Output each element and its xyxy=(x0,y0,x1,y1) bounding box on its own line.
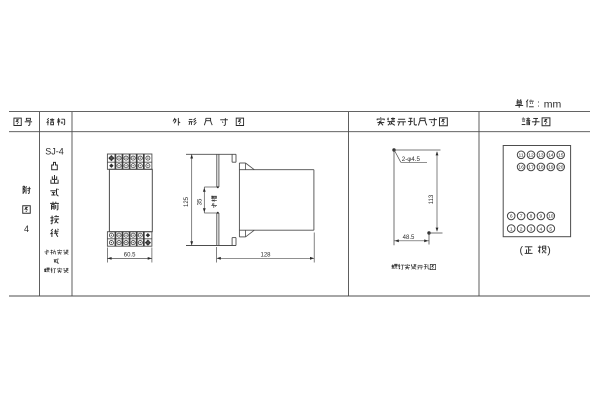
svg-text:(: ( xyxy=(520,244,524,256)
svg-text:mm: mm xyxy=(544,99,562,111)
svg-text:4: 4 xyxy=(24,224,29,234)
svg-text:7: 7 xyxy=(520,214,523,220)
svg-text:113: 113 xyxy=(429,194,435,204)
svg-text:18: 18 xyxy=(538,165,544,171)
svg-text:12: 12 xyxy=(528,153,534,159)
svg-text:8: 8 xyxy=(530,214,533,220)
svg-text:35: 35 xyxy=(197,198,203,205)
svg-text:11: 11 xyxy=(519,153,524,159)
svg-text:1: 1 xyxy=(510,226,513,232)
svg-text:): ) xyxy=(547,244,551,256)
svg-text:9: 9 xyxy=(540,214,543,220)
svg-text::: : xyxy=(537,99,540,110)
svg-text:17: 17 xyxy=(528,165,534,171)
svg-text:2: 2 xyxy=(520,226,523,232)
svg-text:20: 20 xyxy=(558,165,564,171)
svg-text:13: 13 xyxy=(538,153,544,159)
svg-text:14: 14 xyxy=(548,153,554,159)
svg-text:60.5: 60.5 xyxy=(124,253,136,259)
svg-text:125: 125 xyxy=(184,196,190,207)
svg-text:5: 5 xyxy=(549,226,552,232)
svg-text:16: 16 xyxy=(518,165,524,171)
svg-text:15: 15 xyxy=(558,153,564,159)
svg-text:SJ-4: SJ-4 xyxy=(45,147,64,157)
svg-text:48.5: 48.5 xyxy=(403,235,415,241)
svg-text:2-φ4.5: 2-φ4.5 xyxy=(402,156,421,163)
svg-text:6: 6 xyxy=(510,214,513,220)
svg-text:10: 10 xyxy=(548,214,554,220)
svg-text:128: 128 xyxy=(260,253,271,259)
svg-text:19: 19 xyxy=(548,165,554,171)
svg-text:3: 3 xyxy=(530,226,533,232)
svg-text:4: 4 xyxy=(540,226,543,232)
